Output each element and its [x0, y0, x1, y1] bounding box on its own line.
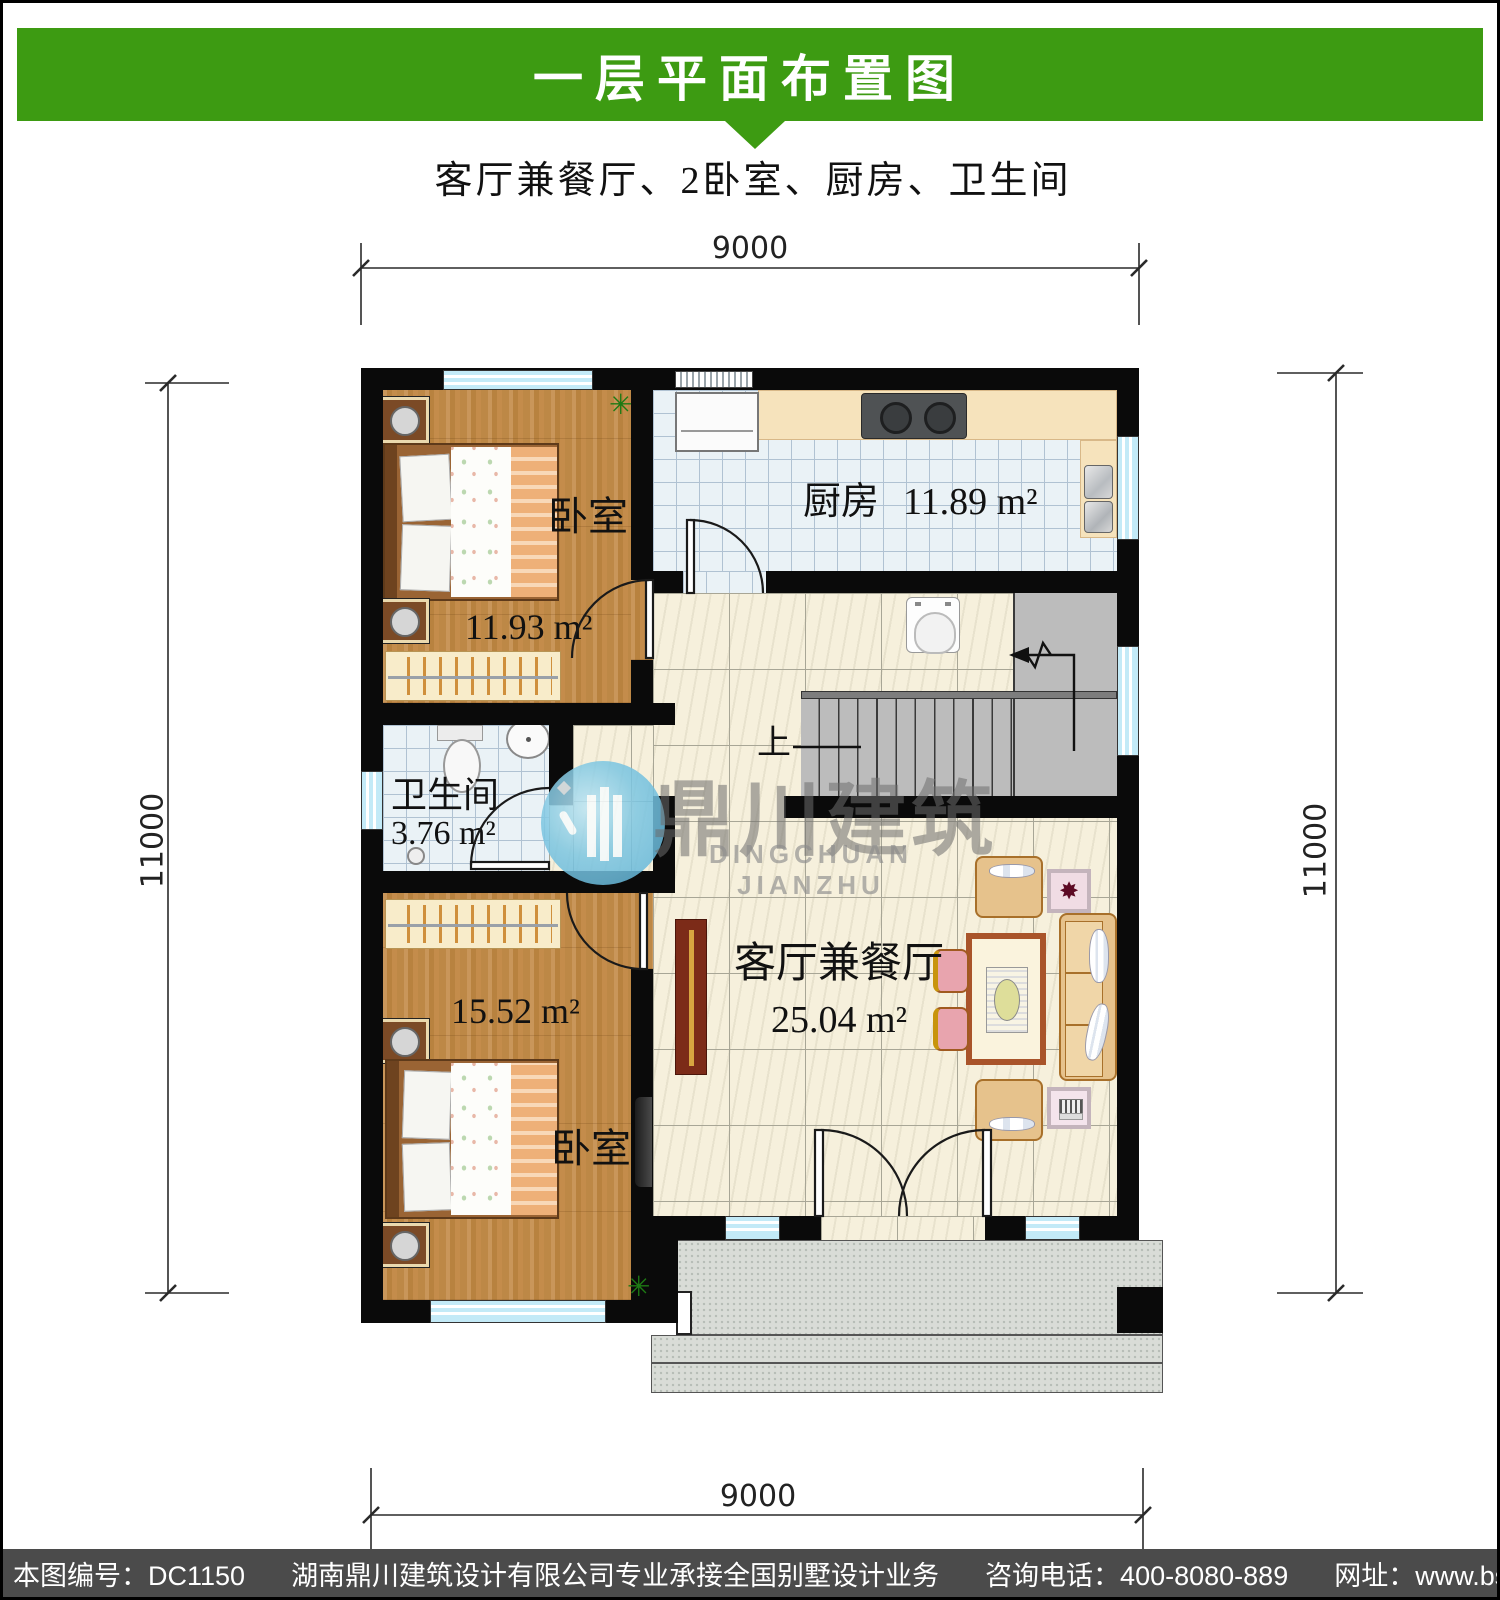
- label-bedroom-bottom-name: 卧室: [551, 1129, 631, 1169]
- label-living-name: 客厅兼餐厅: [719, 943, 959, 985]
- porch-step-1: [651, 1335, 1163, 1363]
- footer-bar: 本图编号：DC1150 湖南鼎川建筑设计有限公司专业承接全国别墅设计业务 咨询电…: [3, 1549, 1500, 1597]
- dim-top: 9000: [650, 231, 850, 266]
- window-living-right: [1025, 1216, 1080, 1240]
- nightstand-icon: [379, 1223, 429, 1267]
- nightstand-icon: [379, 1019, 429, 1063]
- door-opening-bedroom-top: [631, 580, 653, 660]
- window-living-left: [725, 1216, 780, 1240]
- wall-bed1-bath: [383, 703, 675, 725]
- label-bathroom-area: 3.76 m²: [391, 817, 496, 851]
- porch-step-2: [651, 1363, 1163, 1393]
- label-bathroom-name: 卫生间: [391, 777, 499, 813]
- vent-hatch-kitchen: [675, 371, 753, 388]
- wardrobe-bedroom-top: [385, 651, 561, 701]
- page-header: 一层平面布置图: [17, 28, 1483, 121]
- page-title: 一层平面布置图: [533, 39, 967, 111]
- window-kitchen-right: [1117, 436, 1139, 540]
- porch-column: [1117, 1287, 1163, 1333]
- dining-table-icon: [966, 933, 1046, 1065]
- label-bedroom-bottom-area: 15.52 m²: [451, 993, 580, 1029]
- window-bedroom-bottom: [430, 1300, 606, 1323]
- wall-bath-right: [549, 725, 573, 805]
- wall-corridor-jamb: [653, 796, 675, 871]
- tv-bedroom-bottom: [635, 1097, 652, 1187]
- plant-icon: ✳: [609, 391, 632, 419]
- label-bedroom-top-area: 11.93 m²: [465, 609, 592, 645]
- flower-art-icon: ✸: [1047, 869, 1091, 913]
- nightstand-icon: [379, 397, 429, 443]
- armchair-icon: [975, 856, 1043, 918]
- kitchen-sink-basin-2: [1084, 501, 1113, 533]
- footer-website: 网址：www.bstzcs.com: [1334, 1554, 1500, 1593]
- header-pointer-icon: [725, 121, 785, 149]
- kitchen-sink-basin-1: [1084, 465, 1113, 499]
- dim-right: 11000: [1299, 781, 1334, 921]
- label-kitchen: 厨房 11.89 m²: [803, 483, 1038, 521]
- wall-bottom-joint: [653, 1240, 678, 1300]
- stair-treads: [801, 698, 1013, 796]
- dim-bottom: 9000: [658, 1479, 858, 1514]
- bed-bedroom-bottom: [385, 1059, 559, 1219]
- wall-hall-living: [784, 796, 1139, 818]
- wall-kitchen-bottom-left: [653, 571, 683, 593]
- plant-icon: ✳: [627, 1273, 650, 1301]
- porch-slab: [676, 1240, 1163, 1335]
- label-living-area: 25.04 m²: [719, 1001, 959, 1039]
- stair-railing: [801, 691, 1117, 699]
- entry-door-opening: [821, 1216, 985, 1240]
- dim-left: 11000: [136, 771, 171, 911]
- footer-phone: 咨询电话：400-8080-889: [985, 1554, 1288, 1593]
- label-stairs-up: 上: [757, 727, 791, 761]
- window-stair-landing: [1117, 646, 1139, 756]
- passage-corridor: [631, 725, 653, 871]
- door-opening-bathroom: [549, 805, 573, 871]
- water-heater-icon: [906, 597, 960, 653]
- window-bathroom: [361, 771, 383, 830]
- wall-kitchen-bottom-right: [766, 571, 1139, 593]
- heater-grille-icon: [1047, 1087, 1091, 1129]
- wall-left: [361, 390, 383, 1323]
- label-kitchen-name: 厨房: [803, 483, 879, 521]
- wardrobe-bedroom-bottom: [385, 899, 561, 949]
- footer-drawing-id: 本图编号：DC1150: [13, 1554, 245, 1593]
- plan-subtitle: 客厅兼餐厅、2卧室、厨房、卫生间: [3, 149, 1500, 204]
- footer-company: 湖南鼎川建筑设计有限公司专业承接全国别墅设计业务: [291, 1554, 939, 1593]
- armchair-icon: [975, 1079, 1043, 1141]
- wall-bath-bed2: [383, 871, 675, 893]
- stove-icon: [861, 393, 967, 439]
- floor-plan-sheet: 一层平面布置图 客厅兼餐厅、2卧室、厨房、卫生间 9000 9000 11000…: [0, 0, 1500, 1600]
- fridge-icon: [675, 392, 759, 452]
- tv-cabinet-icon: [675, 919, 707, 1075]
- label-bedroom-top-name: 卧室: [548, 497, 628, 537]
- bath-sink-icon: [506, 719, 550, 759]
- window-bedroom-top: [443, 370, 593, 390]
- sofa-icon: [1059, 913, 1117, 1081]
- porch-notch: [676, 1291, 692, 1335]
- nightstand-icon: [379, 599, 429, 643]
- door-opening-bedroom-bottom: [631, 893, 653, 969]
- label-kitchen-area: 11.89 m²: [903, 483, 1038, 521]
- door-opening-kitchen: [683, 571, 766, 593]
- bed-bedroom-top: [383, 443, 559, 601]
